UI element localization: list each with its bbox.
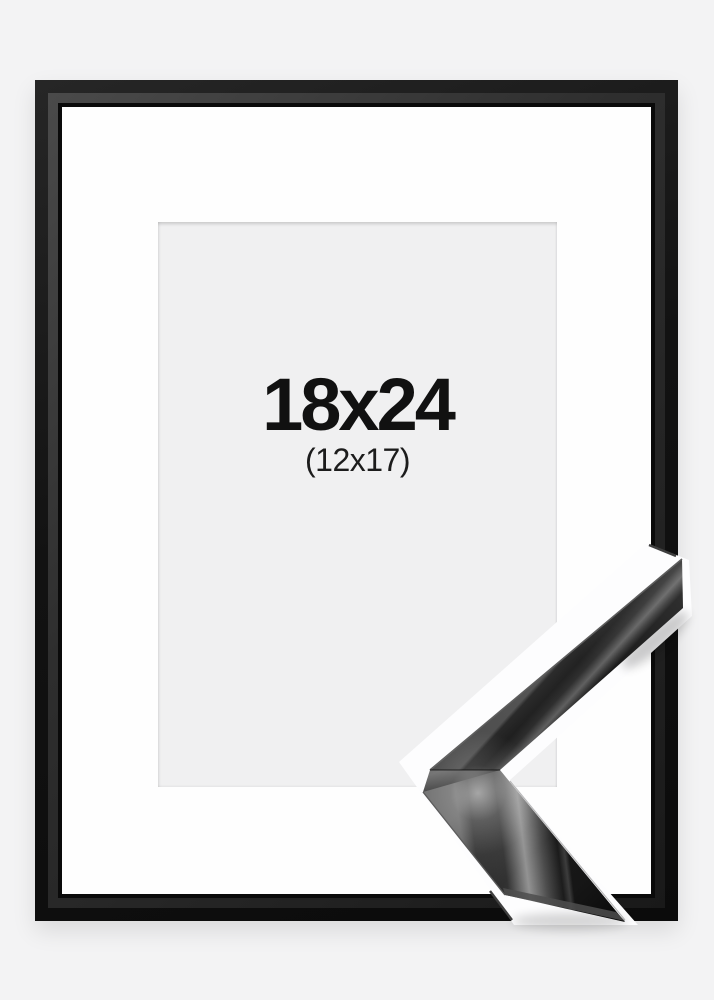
product-photo-stage: 18x24 (12x17) <box>0 0 714 1000</box>
size-label: 18x24 <box>158 368 557 442</box>
mat-window <box>158 222 557 787</box>
matted-size-label: (12x17) <box>158 442 557 478</box>
